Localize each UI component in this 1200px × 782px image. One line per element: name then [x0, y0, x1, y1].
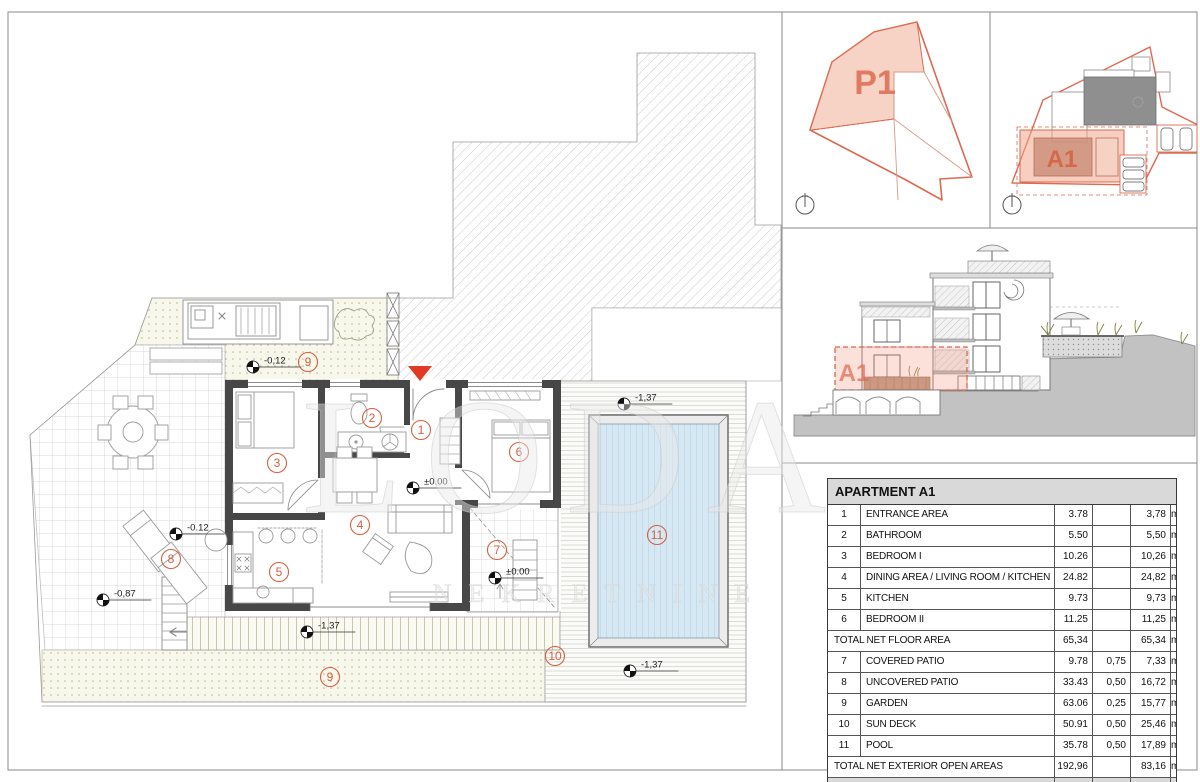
table-cell: 35.78 [1055, 736, 1093, 756]
table-cell: DINING AREA / LIVING ROOM / KITCHEN [861, 568, 1055, 588]
svg-text:5: 5 [276, 565, 283, 579]
table-cell: m² [1171, 715, 1176, 735]
table-cell: 0,50 [1093, 673, 1131, 693]
table-cell: 4 [828, 568, 861, 588]
table-cell: ENTRANCE AREA [861, 505, 1055, 525]
table-cell: 63.06 [1055, 694, 1093, 714]
table-row: 1ENTRANCE AREA3.783,78m² [828, 505, 1176, 526]
table-cell: 11 [828, 736, 861, 756]
table-cell: APARTMENT A1 TOTAL NET AREA [828, 778, 1055, 782]
table-cell: m² [1171, 505, 1176, 525]
svg-text:-1,37: -1,37 [641, 660, 663, 671]
main-floor-plan: -0,12-0.12-0,87±0.00±0.00-1,37-1,37-1,37… [30, 53, 848, 706]
elevation-a1-label: A1 [839, 360, 870, 387]
table-cell: m² [1171, 526, 1176, 546]
table-cell: BEDROOM II [861, 610, 1055, 630]
table-cell [1093, 778, 1131, 782]
table-cell: 9,73 [1131, 589, 1171, 609]
table-cell [1093, 568, 1131, 588]
table-cell: KITCHEN [861, 589, 1055, 609]
table-row: 11POOL35.780,5017,89m² [828, 736, 1176, 757]
svg-text:11: 11 [651, 528, 664, 542]
table-cell: 258,30 [1055, 778, 1093, 782]
svg-text:1: 1 [418, 423, 425, 437]
svg-text:-1,37: -1,37 [635, 393, 657, 404]
table-row: 7COVERED PATIO9.780,757,33m² [828, 652, 1176, 673]
table-cell: 0,75 [1093, 652, 1131, 672]
table-cell [1093, 610, 1131, 630]
svg-text:3: 3 [274, 456, 281, 470]
table-row: 9GARDEN63.060,2515,77m² [828, 694, 1176, 715]
table-cell [1093, 757, 1131, 777]
table-row: 4DINING AREA / LIVING ROOM / KITCHEN24.8… [828, 568, 1176, 589]
north-icon [796, 193, 814, 214]
area-table-body: 1ENTRANCE AREA3.783,78m²2BATHROOM5.505,5… [828, 505, 1176, 782]
table-cell: 17,89 [1131, 736, 1171, 756]
svg-text:9: 9 [305, 355, 312, 369]
table-cell: m² [1171, 631, 1176, 651]
table-row: TOTAL NET EXTERIOR OPEN AREAS192,9683,16… [828, 757, 1176, 778]
table-cell: 8 [828, 673, 861, 693]
outdoor-kitchen [183, 300, 333, 344]
table-cell: 5,50 [1131, 526, 1171, 546]
table-cell: m² [1171, 568, 1176, 588]
table-cell: 9.78 [1055, 652, 1093, 672]
table-cell: 192,96 [1055, 757, 1093, 777]
table-cell: SUN DECK [861, 715, 1055, 735]
table-cell: 24,82 [1131, 568, 1171, 588]
table-cell: 16,72 [1131, 673, 1171, 693]
site-plan-a1: A1 [1003, 47, 1197, 214]
table-row: APARTMENT A1 TOTAL NET AREA258,30148,50m… [828, 778, 1176, 782]
table-cell: 148,50 [1131, 778, 1171, 782]
table-cell: m² [1171, 652, 1176, 672]
table-cell: 25,46 [1131, 715, 1171, 735]
north-icon [1003, 193, 1021, 214]
table-cell: 1 [828, 505, 861, 525]
table-cell: TOTAL NET FLOOR AREA [828, 631, 1055, 651]
table-cell: m² [1171, 694, 1176, 714]
table-cell: BEDROOM I [861, 547, 1055, 567]
svg-text:7: 7 [494, 543, 501, 557]
table-cell [1093, 547, 1131, 567]
svg-text:±0.00: ±0.00 [424, 477, 448, 488]
table-cell: 11,25 [1131, 610, 1171, 630]
table-cell: 5.50 [1055, 526, 1093, 546]
table-cell: 7 [828, 652, 861, 672]
table-row: 6BEDROOM II11.2511,25m² [828, 610, 1176, 631]
table-cell: 83,16 [1131, 757, 1171, 777]
table-cell: 65,34 [1055, 631, 1093, 651]
svg-text:±0.00: ±0.00 [506, 567, 530, 578]
svg-text:-1,37: -1,37 [318, 621, 340, 632]
table-cell: m² [1171, 778, 1176, 782]
table-cell [1093, 589, 1131, 609]
table-cell: GARDEN [861, 694, 1055, 714]
table-row: 5KITCHEN9.739,73m² [828, 589, 1176, 610]
svg-text:-0,12: -0,12 [264, 356, 286, 367]
table-cell: POOL [861, 736, 1055, 756]
table-cell: 15,77 [1131, 694, 1171, 714]
svg-text:10: 10 [548, 649, 562, 663]
p1-label: P1 [854, 64, 896, 102]
table-cell: 3 [828, 547, 861, 567]
table-cell: 2 [828, 526, 861, 546]
table-row: 3BEDROOM I10.2610,26m² [828, 547, 1176, 568]
table-cell: m² [1171, 757, 1176, 777]
table-cell: BATHROOM [861, 526, 1055, 546]
table-cell: 5 [828, 589, 861, 609]
room-number-label: 10 [546, 647, 565, 666]
table-cell: 50.91 [1055, 715, 1093, 735]
table-cell [1093, 505, 1131, 525]
architectural-sheet: -0,12-0.12-0,87±0.00±0.00-1,37-1,37-1,37… [0, 0, 1200, 782]
table-cell [1093, 631, 1131, 651]
table-cell: 10 [828, 715, 861, 735]
table-cell: 10.26 [1055, 547, 1093, 567]
svg-text:-0,87: -0,87 [114, 589, 136, 600]
table-cell: 10,26 [1131, 547, 1171, 567]
table-row: 2BATHROOM5.505,50m² [828, 526, 1176, 547]
table-cell: COVERED PATIO [861, 652, 1055, 672]
table-cell: 9.73 [1055, 589, 1093, 609]
table-cell: 65,34 [1131, 631, 1171, 651]
covered-patio [467, 505, 558, 612]
pergola-trellis [387, 293, 399, 375]
table-cell: UNCOVERED PATIO [861, 673, 1055, 693]
table-cell: TOTAL NET EXTERIOR OPEN AREAS [828, 757, 1055, 777]
table-cell: m² [1171, 673, 1176, 693]
table-row: 8UNCOVERED PATIO33.430,5016,72m² [828, 673, 1176, 694]
table-cell: m² [1171, 736, 1176, 756]
area-table: APARTMENT A1 1ENTRANCE AREA3.783,78m²2BA… [827, 478, 1177, 782]
walkway-deck [187, 617, 560, 650]
table-cell: 11.25 [1055, 610, 1093, 630]
table-cell: m² [1171, 589, 1176, 609]
svg-text:8: 8 [168, 552, 175, 566]
a1-label: A1 [1047, 146, 1078, 173]
table-cell: 33.43 [1055, 673, 1093, 693]
uncovered-patio [30, 345, 225, 650]
table-cell: 0,50 [1093, 736, 1131, 756]
svg-text:2: 2 [369, 411, 376, 425]
table-cell: m² [1171, 610, 1176, 630]
table-cell: 0,50 [1093, 715, 1131, 735]
area-table-title: APARTMENT A1 [828, 479, 1176, 505]
table-cell: 0,25 [1093, 694, 1131, 714]
svg-text:9: 9 [327, 670, 334, 684]
table-cell: m² [1171, 547, 1176, 567]
site-plan-p1: P1 [796, 22, 972, 214]
garden-bottom [42, 650, 545, 702]
svg-text:6: 6 [516, 445, 523, 459]
table-cell: 7,33 [1131, 652, 1171, 672]
table-row: TOTAL NET FLOOR AREA65,3465,34m² [828, 631, 1176, 652]
table-cell: 6 [828, 610, 861, 630]
table-cell: 9 [828, 694, 861, 714]
table-cell: 24.82 [1055, 568, 1093, 588]
svg-text:-0.12: -0.12 [187, 523, 209, 534]
table-row: 10SUN DECK50.910,5025,46m² [828, 715, 1176, 736]
table-cell: 3.78 [1055, 505, 1093, 525]
table-cell [1093, 526, 1131, 546]
svg-text:4: 4 [357, 518, 364, 532]
table-cell: 3,78 [1131, 505, 1171, 525]
elevation-view: A1 [794, 245, 1195, 436]
